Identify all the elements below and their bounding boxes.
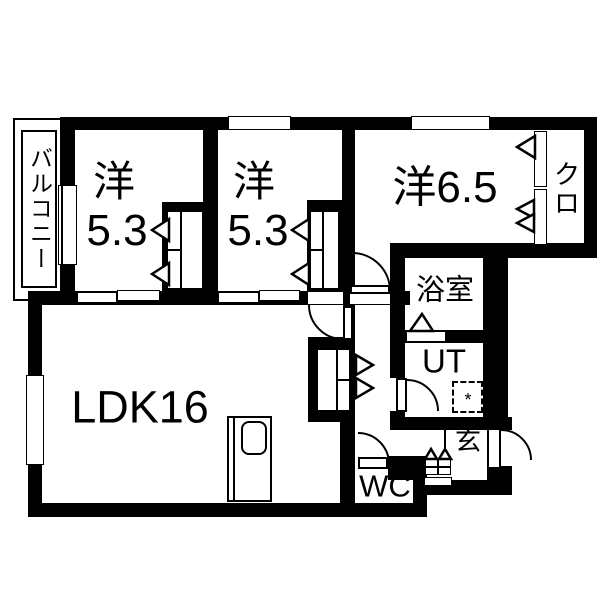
bedroom1-label: 洋 [93,161,135,203]
closet-bedroom2-fold-arrow-top [292,219,309,241]
closet-bedroom1-fold-arrow-bottom [152,263,169,285]
entrance-door-arc [501,430,531,460]
bedroom2-size: 5.3 [227,209,288,253]
wc-label: WC [359,471,411,502]
hall-closet-fold-arrow-bottom [356,378,373,398]
wc-door-arc [358,433,389,464]
closet-bedroom2-fold-arrow-bottom [292,263,309,285]
shoe-cabinet-fold-arrow-left [425,449,437,459]
door-symbols-overlay [0,0,600,600]
bedroom2-label: 洋 [233,161,275,203]
utility-door-arc [407,380,438,411]
bathroom-label: 浴室 [416,277,474,306]
balcony-label: バルコニー [28,147,51,272]
ldk-door-arc [309,305,343,339]
utility-label: UT [422,345,466,378]
bedroom1-size: 5.3 [86,209,147,253]
bath-fold-door-arrow [410,314,433,331]
bedroom3-door-arc [352,253,390,291]
floor-plan: * バルコニー 洋 5.3 洋 5.3 洋6.5 クロ 浴室 UT LDK16 … [0,0,600,600]
ldk-label: LDK16 [71,385,209,430]
hall-closet-fold-arrow-top [356,355,373,375]
closet-bedroom3-fold-arrow-top [517,136,535,158]
bedroom3-label: 洋6.5 [392,166,497,210]
closet-bedroom3-fold-arrow-bottom2 [517,214,534,232]
closet-bedroom1-fold-arrow-top [152,219,169,241]
shoe-cabinet-fold-arrow-right [439,449,451,459]
entrance-label: 玄 [455,428,481,454]
closet-label: クロ [551,160,578,218]
